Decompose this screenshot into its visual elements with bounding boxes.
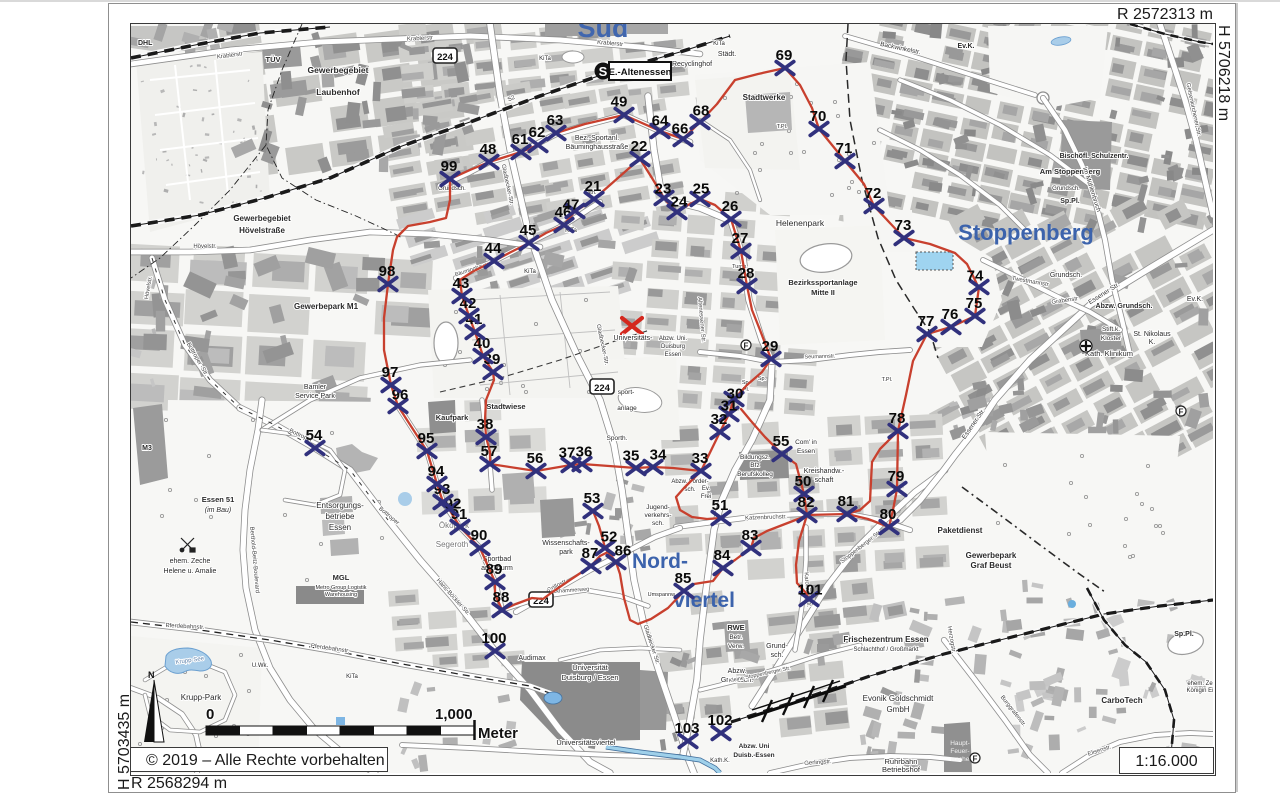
svg-text:Stift.k.: Stift.k. — [1102, 326, 1120, 333]
svg-text:F: F — [1179, 408, 1184, 417]
svg-text:22: 22 — [631, 138, 648, 155]
svg-text:Stoppenberg: Stoppenberg — [958, 220, 1094, 245]
svg-text:Haupt-: Haupt- — [950, 740, 970, 747]
svg-text:Sp.Pl.: Sp.Pl. — [1174, 631, 1194, 638]
svg-text:betriebe: betriebe — [326, 512, 355, 521]
svg-text:KiTa: KiTa — [539, 56, 551, 62]
svg-text:Jugend-: Jugend- — [646, 504, 670, 511]
svg-text:33: 33 — [692, 450, 709, 467]
svg-text:84: 84 — [714, 547, 731, 564]
svg-text:74: 74 — [967, 268, 984, 285]
svg-text:Ev.K.: Ev.K. — [958, 43, 975, 50]
svg-text:wache: wache — [950, 756, 970, 763]
svg-text:55: 55 — [773, 433, 790, 450]
svg-text:Bäuminghausstraße: Bäuminghausstraße — [566, 144, 629, 151]
svg-text:Gewerbepark M1: Gewerbepark M1 — [294, 302, 359, 311]
svg-text:56: 56 — [527, 450, 544, 467]
svg-text:Sp.Pl.: Sp.Pl. — [1060, 198, 1080, 205]
svg-text:TÜV: TÜV — [266, 55, 281, 64]
svg-text:Feuer-: Feuer- — [950, 748, 969, 755]
svg-text:Königin Ei: Königin Ei — [1186, 688, 1213, 694]
svg-text:45: 45 — [520, 222, 537, 239]
svg-text:Seumannstr.: Seumannstr. — [804, 353, 836, 360]
svg-text:97: 97 — [382, 364, 399, 381]
svg-text:Frei: Frei — [701, 494, 711, 500]
svg-text:E.-Altenessen: E.-Altenessen — [609, 67, 672, 78]
svg-text:66: 66 — [672, 121, 689, 138]
svg-text:Verw.: Verw. — [728, 643, 744, 650]
svg-text:S: S — [599, 64, 608, 79]
svg-text:Com' in: Com' in — [795, 439, 817, 446]
svg-text:102: 102 — [707, 712, 732, 729]
svg-text:Am Stoppenberg: Am Stoppenberg — [1040, 167, 1101, 176]
svg-text:KiTa: KiTa — [346, 674, 358, 680]
svg-text:anlage: anlage — [617, 405, 637, 412]
svg-text:Betriebshof: Betriebshof — [882, 765, 921, 773]
svg-text:Essen: Essen — [797, 448, 815, 455]
svg-text:Laubenhof: Laubenhof — [316, 87, 360, 97]
svg-text:Helene u. Amalie: Helene u. Amalie — [164, 568, 217, 575]
svg-text:Schlachthof / Großmarkt: Schlachthof / Großmarkt — [853, 647, 918, 653]
svg-text:ehem. Ze: ehem. Ze — [1187, 681, 1213, 687]
svg-text:Duisburg / Essen: Duisburg / Essen — [561, 673, 618, 682]
svg-text:1,000: 1,000 — [435, 706, 473, 723]
svg-text:Berufskolleg: Berufskolleg — [737, 471, 773, 478]
svg-text:Ev.K.: Ev.K. — [1187, 296, 1203, 303]
svg-text:sport-: sport- — [618, 389, 635, 396]
svg-text:34: 34 — [650, 447, 667, 464]
svg-text:48: 48 — [480, 141, 497, 158]
svg-text:St. Nikolaus: St. Nikolaus — [1133, 331, 1171, 338]
svg-text:Umspannw.: Umspannw. — [648, 592, 677, 598]
svg-text:RWE: RWE — [727, 623, 744, 632]
svg-text:Evonik Goldschmidt: Evonik Goldschmidt — [863, 694, 934, 703]
svg-text:N: N — [148, 670, 155, 680]
svg-text:82: 82 — [798, 494, 815, 511]
svg-text:61: 61 — [512, 131, 529, 148]
svg-text:53: 53 — [584, 490, 601, 507]
svg-text:Mitte II: Mitte II — [811, 288, 835, 297]
svg-text:98: 98 — [379, 263, 396, 280]
svg-text:72: 72 — [865, 185, 882, 202]
svg-text:64: 64 — [652, 113, 669, 130]
svg-text:Universitätsviertel: Universitätsviertel — [556, 738, 616, 747]
svg-text:50: 50 — [795, 473, 812, 490]
svg-text:71: 71 — [836, 140, 853, 157]
svg-text:Abzw. Uni.: Abzw. Uni. — [659, 336, 688, 342]
svg-text:Segeroth: Segeroth — [436, 540, 468, 549]
svg-text:86: 86 — [615, 543, 632, 560]
svg-text:MGL: MGL — [333, 573, 350, 582]
svg-text:Betr.: Betr. — [729, 634, 743, 641]
svg-text:verkehrs-: verkehrs- — [644, 512, 671, 519]
svg-text:Grund-: Grund- — [766, 643, 788, 650]
svg-text:Bildungsz.: Bildungsz. — [740, 454, 770, 461]
svg-text:38: 38 — [477, 416, 494, 433]
svg-text:62: 62 — [529, 124, 546, 141]
svg-text:Städt.: Städt. — [718, 51, 736, 58]
svg-text:57: 57 — [481, 443, 498, 460]
svg-text:Duisburg: Duisburg — [661, 344, 685, 350]
svg-text:25: 25 — [693, 181, 710, 198]
svg-text:Grundsch.: Grundsch. — [1052, 186, 1080, 192]
svg-text:Recyclinghof: Recyclinghof — [672, 61, 712, 68]
svg-text:Ev.: Ev. — [702, 486, 711, 492]
svg-text:87: 87 — [582, 545, 599, 562]
svg-text:85: 85 — [675, 570, 692, 587]
svg-text:Kloster: Kloster — [1101, 335, 1122, 342]
svg-text:95: 95 — [418, 430, 435, 447]
svg-text:99: 99 — [441, 158, 458, 175]
svg-text:Kath. Klinikum: Kath. Klinikum — [1085, 349, 1133, 358]
svg-text:44: 44 — [485, 240, 502, 257]
svg-text:27: 27 — [732, 230, 749, 247]
svg-text:Paketdienst: Paketdienst — [938, 526, 983, 535]
svg-text:Gewerbegebiet: Gewerbegebiet — [308, 65, 369, 75]
svg-text:Universitäts-: Universitäts- — [614, 335, 654, 342]
svg-text:Stadtwiese: Stadtwiese — [486, 402, 525, 411]
svg-text:Audimax: Audimax — [518, 655, 546, 662]
svg-text:M3: M3 — [142, 445, 152, 452]
svg-text:Frischezentrum Essen: Frischezentrum Essen — [843, 635, 928, 644]
svg-text:49: 49 — [611, 94, 628, 111]
svg-text:23: 23 — [655, 181, 672, 198]
svg-text:Kaufpark: Kaufpark — [436, 413, 469, 422]
svg-text:park: park — [559, 549, 573, 556]
svg-text:68: 68 — [693, 103, 710, 120]
svg-text:T.Pl.: T.Pl. — [777, 124, 788, 130]
svg-text:Bezirkssportanlage: Bezirkssportanlage — [788, 278, 857, 287]
svg-text:83: 83 — [742, 527, 759, 544]
svg-text:51: 51 — [712, 497, 729, 514]
svg-text:ehem. Zeche: ehem. Zeche — [170, 558, 211, 565]
svg-text:Helenenpark: Helenenpark — [776, 218, 825, 228]
svg-text:Sporth.: Sporth. — [607, 435, 628, 442]
svg-text:90: 90 — [471, 527, 488, 544]
svg-text:Bez.-Sportanl.: Bez.-Sportanl. — [575, 135, 619, 142]
svg-text:28: 28 — [738, 265, 755, 282]
svg-text:81: 81 — [838, 493, 855, 510]
svg-text:sch.: sch. — [771, 652, 784, 659]
svg-text:Essen: Essen — [665, 352, 682, 358]
svg-text:76: 76 — [942, 306, 959, 323]
svg-text:Bamler: Bamler — [304, 384, 327, 391]
svg-text:224: 224 — [594, 383, 611, 394]
svg-text:89: 89 — [486, 561, 503, 578]
svg-text:U.Wk.: U.Wk. — [252, 663, 269, 669]
svg-text:K.: K. — [1149, 339, 1156, 346]
svg-text:29: 29 — [762, 338, 779, 355]
svg-text:103: 103 — [674, 720, 699, 737]
svg-text:sch.: sch. — [652, 520, 664, 527]
svg-text:Abzw. Grundsch.: Abzw. Grundsch. — [1096, 303, 1153, 310]
svg-text:Abzw. Uni: Abzw. Uni — [739, 743, 770, 750]
svg-text:73: 73 — [895, 217, 912, 234]
svg-text:(im Bau): (im Bau) — [205, 507, 231, 514]
svg-text:43: 43 — [453, 275, 470, 292]
svg-text:24: 24 — [671, 194, 688, 211]
svg-text:T.Pl.: T.Pl. — [882, 377, 893, 383]
svg-text:101: 101 — [797, 582, 822, 599]
svg-text:schaft: schaft — [815, 477, 834, 484]
svg-text:63: 63 — [547, 112, 564, 129]
svg-text:69: 69 — [776, 47, 793, 64]
svg-text:Metro Group Logistik: Metro Group Logistik — [315, 585, 366, 591]
svg-text:35: 35 — [623, 448, 640, 465]
svg-text:Abzw.: Abzw. — [728, 668, 747, 675]
svg-text:F: F — [744, 342, 749, 351]
svg-text:Duisb.-Essen: Duisb.-Essen — [733, 752, 774, 759]
svg-text:88: 88 — [493, 589, 510, 606]
svg-text:Hövelstr.: Hövelstr. — [193, 244, 217, 250]
svg-text:GmbH: GmbH — [886, 705, 909, 714]
svg-text:47: 47 — [563, 197, 580, 214]
svg-text:21: 21 — [585, 178, 602, 195]
svg-text:Meter: Meter — [478, 725, 518, 742]
svg-text:Bfz: Bfz — [750, 462, 759, 469]
svg-text:80: 80 — [880, 506, 897, 523]
svg-text:Service Park: Service Park — [295, 393, 335, 400]
svg-text:100: 100 — [481, 630, 506, 647]
svg-text:Grundsch.: Grundsch. — [1050, 272, 1082, 279]
svg-text:Essen 51: Essen 51 — [202, 495, 235, 504]
svg-text:70: 70 — [810, 108, 827, 125]
svg-text:78: 78 — [889, 410, 906, 427]
svg-text:26: 26 — [722, 198, 739, 215]
svg-text:94: 94 — [428, 463, 445, 480]
svg-text:75: 75 — [966, 295, 983, 312]
svg-text:Essen: Essen — [329, 523, 351, 532]
svg-text:79: 79 — [888, 468, 905, 485]
svg-text:DHL: DHL — [138, 40, 153, 47]
svg-text:Warehousing: Warehousing — [325, 592, 357, 598]
svg-text:0: 0 — [206, 706, 214, 723]
svg-text:Stadtwerke: Stadtwerke — [743, 93, 786, 102]
svg-text:KiTa: KiTa — [524, 269, 536, 275]
svg-text:77: 77 — [918, 313, 935, 330]
svg-text:Gewerbegebiet: Gewerbegebiet — [233, 214, 291, 223]
svg-text:Universität: Universität — [572, 663, 608, 672]
svg-text:sch.: sch. — [684, 487, 695, 493]
svg-text:Graf Beust: Graf Beust — [971, 561, 1012, 570]
svg-text:KiTa: KiTa — [713, 41, 725, 47]
svg-text:Bischöfl. Schulzentr.: Bischöfl. Schulzentr. — [1060, 153, 1129, 160]
svg-text:Hövelstraße: Hövelstraße — [239, 226, 285, 235]
svg-text:54: 54 — [306, 427, 323, 444]
svg-text:F: F — [973, 755, 978, 764]
svg-text:32: 32 — [711, 411, 728, 428]
svg-text:224: 224 — [437, 52, 454, 63]
svg-text:Kath.K.: Kath.K. — [710, 758, 730, 764]
svg-text:Gewerbepark: Gewerbepark — [966, 551, 1017, 560]
svg-text:Sp.: Sp. — [758, 376, 767, 382]
svg-text:Entsorgungs-: Entsorgungs- — [316, 501, 364, 510]
svg-text:37: 37 — [559, 445, 576, 462]
svg-text:CarboTech: CarboTech — [1101, 696, 1142, 705]
